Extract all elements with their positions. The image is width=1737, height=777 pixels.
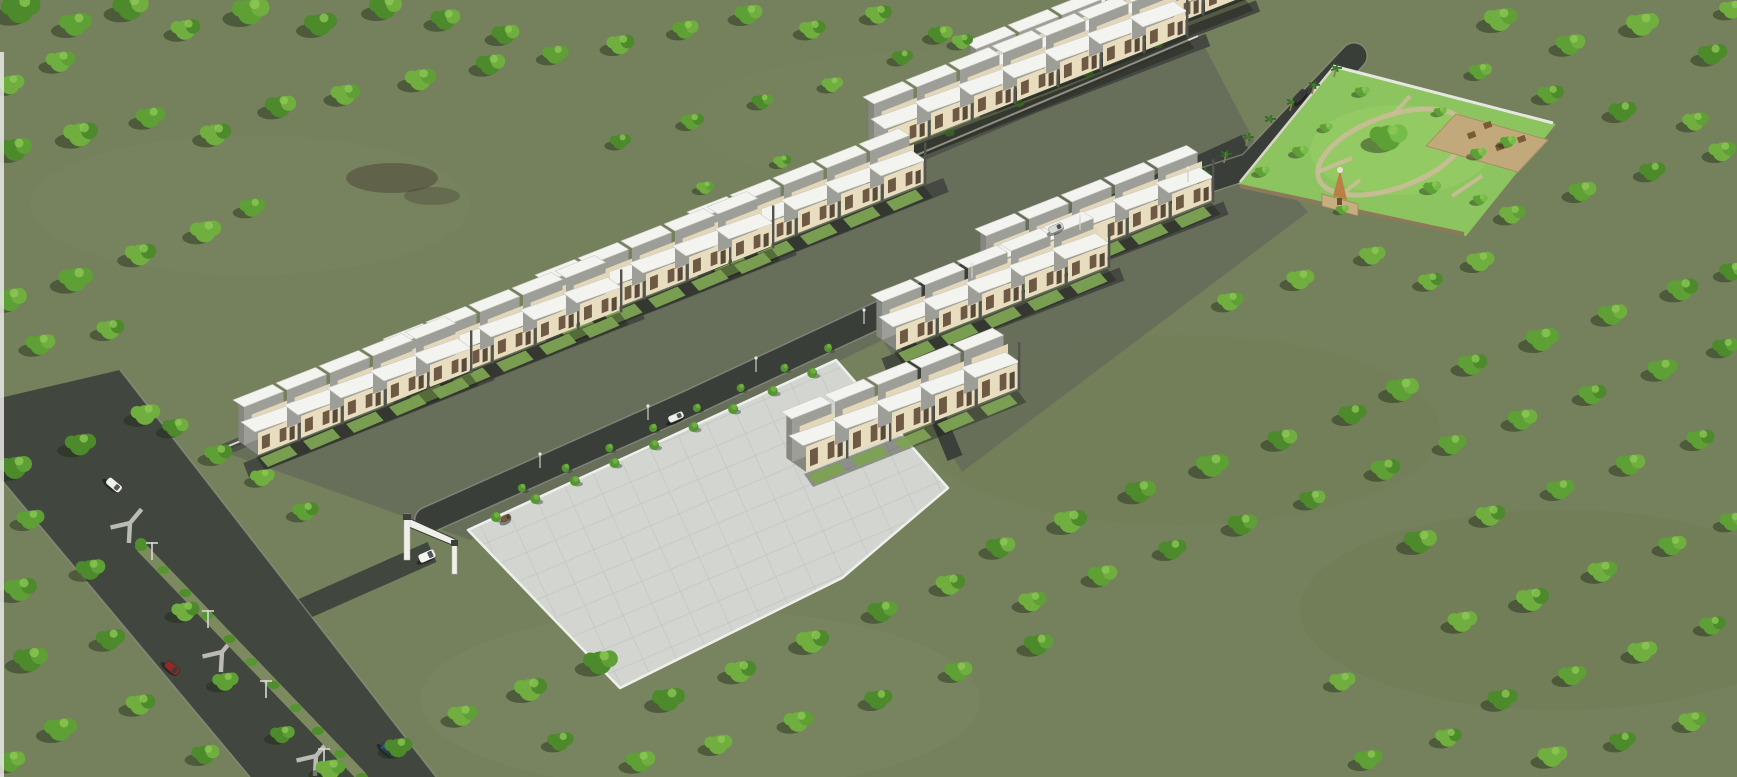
villa-door <box>916 170 921 185</box>
tree-canopy <box>1616 456 1629 469</box>
tree-canopy <box>1088 567 1101 580</box>
palm-crown <box>1334 66 1338 70</box>
tree-canopy <box>16 512 28 524</box>
tree-canopy <box>1473 196 1479 202</box>
tree-canopy <box>1255 168 1261 174</box>
median-hedge <box>246 658 258 666</box>
tree-canopy <box>1500 137 1507 144</box>
tree-canopy <box>76 561 89 574</box>
tree-highlight <box>1462 612 1470 620</box>
tree-canopy <box>734 7 746 19</box>
tree-canopy <box>944 664 956 676</box>
tree-highlight <box>1700 430 1708 438</box>
tree-canopy <box>1217 294 1228 305</box>
villa-window <box>280 427 287 443</box>
tree-highlight <box>1342 205 1346 209</box>
villa-window <box>1168 22 1175 38</box>
tree-canopy <box>292 504 303 515</box>
shrub-highlight <box>521 484 525 488</box>
tree-highlight <box>75 14 84 23</box>
tree-highlight <box>878 690 886 698</box>
tree-canopy <box>476 56 489 69</box>
villa-door <box>971 304 976 319</box>
tree-canopy <box>1018 594 1030 606</box>
gate-pylon-cap <box>451 540 458 546</box>
tree-canopy <box>1386 380 1400 394</box>
tree-canopy <box>1354 752 1366 764</box>
villa-door <box>873 187 878 202</box>
tree-canopy <box>936 576 949 589</box>
tree-canopy <box>191 747 203 759</box>
temple-dome <box>1337 167 1343 173</box>
tree-canopy <box>626 753 639 766</box>
villa-door <box>462 358 467 373</box>
shrub-highlight <box>608 444 612 448</box>
tree-highlight <box>305 503 312 510</box>
tree-highlight <box>80 434 89 443</box>
tree-highlight <box>30 510 38 518</box>
median-hedge <box>290 704 302 712</box>
villa-door <box>678 267 683 282</box>
tree-canopy <box>652 690 666 704</box>
tree-canopy <box>986 539 999 552</box>
tree-canopy <box>1228 516 1241 529</box>
villa-window <box>559 315 566 331</box>
villa-door <box>1049 72 1054 87</box>
tree-canopy <box>190 223 203 236</box>
tree-highlight <box>1502 690 1510 698</box>
shrub-highlight <box>696 404 700 408</box>
tree-highlight <box>175 419 182 426</box>
tree-highlight <box>1712 45 1720 53</box>
tree-canopy <box>171 604 183 616</box>
tree-highlight <box>60 52 68 60</box>
tree-highlight <box>1552 747 1560 755</box>
tree-highlight <box>205 745 213 753</box>
tree-highlight <box>1342 673 1349 680</box>
tree-canopy <box>1719 2 1730 13</box>
tree-canopy <box>1698 46 1711 59</box>
tree-highlight <box>1262 167 1266 171</box>
tree-canopy <box>1434 108 1440 114</box>
tree-canopy <box>725 663 738 676</box>
villa-door <box>1204 187 1209 202</box>
villa-door <box>1178 21 1183 36</box>
tree-canopy <box>1719 514 1730 525</box>
tree-highlight <box>620 35 628 43</box>
tree-highlight <box>762 95 768 101</box>
tree-canopy <box>1371 461 1384 474</box>
tree-canopy <box>704 737 716 749</box>
shrub-highlight <box>652 440 658 446</box>
tree-highlight <box>185 602 193 610</box>
median-hedge <box>179 589 191 597</box>
tree-canopy <box>1484 10 1498 24</box>
shrub-highlight <box>494 512 500 518</box>
tree-canopy <box>773 157 781 165</box>
tree-highlight <box>718 735 726 743</box>
tree-canopy <box>1286 272 1298 284</box>
villa-door <box>830 204 835 219</box>
villa-door <box>1014 287 1019 302</box>
tree-highlight <box>1432 182 1437 187</box>
tree-highlight <box>1362 87 1366 91</box>
villa-door <box>963 106 968 121</box>
tree-canopy <box>1648 361 1661 374</box>
tree-highlight <box>1032 592 1040 600</box>
tree-highlight <box>1695 113 1702 120</box>
tree-canopy <box>384 740 396 752</box>
shrub-highlight <box>652 424 656 428</box>
tree-highlight <box>640 752 648 760</box>
villa-door <box>1194 0 1199 15</box>
shrub-highlight <box>810 368 816 374</box>
tree-highlight <box>1560 480 1568 488</box>
tree-canopy <box>1435 730 1446 741</box>
lamp-head <box>754 356 757 359</box>
tree-canopy <box>952 36 961 45</box>
tree-highlight <box>1372 247 1379 254</box>
tree-canopy <box>1024 636 1037 649</box>
tree-canopy <box>865 7 876 18</box>
villa-window <box>982 379 990 398</box>
lamp-head <box>1186 166 1189 169</box>
tree-canopy <box>1418 275 1429 286</box>
tree-canopy <box>1626 15 1640 29</box>
villa-window <box>1004 288 1011 304</box>
tree-highlight <box>262 469 269 476</box>
tree-canopy <box>547 734 558 745</box>
tree-canopy <box>1423 183 1431 191</box>
shrub-highlight <box>771 386 777 392</box>
tree-canopy <box>405 71 418 84</box>
tree-canopy <box>1558 668 1570 680</box>
tree-canopy <box>1458 356 1471 369</box>
tree-highlight <box>90 560 98 568</box>
tree-highlight <box>1230 293 1237 300</box>
tree-highlight <box>1662 360 1670 368</box>
villa-door <box>1161 204 1166 219</box>
tree-highlight <box>832 78 838 84</box>
tree-highlight <box>140 695 148 703</box>
tree-highlight <box>692 114 698 120</box>
tree-highlight <box>1602 562 1610 570</box>
tree-canopy <box>1470 149 1477 156</box>
villa-window <box>625 285 632 301</box>
tree-highlight <box>555 46 562 53</box>
tree-canopy <box>26 336 39 349</box>
tree-canopy <box>13 650 28 665</box>
tree-highlight <box>1712 617 1719 624</box>
tree-highlight <box>40 335 48 343</box>
tree-highlight <box>1172 540 1180 548</box>
villa-door <box>483 348 488 363</box>
tree-highlight <box>620 135 626 141</box>
tree-highlight <box>505 25 513 33</box>
shrub-highlight <box>731 404 737 410</box>
shrub-highlight <box>534 494 540 500</box>
villa-window <box>1000 373 1007 392</box>
tree-canopy <box>1538 748 1551 761</box>
lamp-head <box>538 452 541 455</box>
tree-highlight <box>798 712 806 720</box>
tree-canopy <box>1476 507 1489 520</box>
villa-door <box>787 221 792 236</box>
palm-crown <box>1224 152 1228 156</box>
villa-door <box>1057 270 1062 285</box>
tree-canopy <box>270 728 281 739</box>
palm-crown <box>1246 135 1250 139</box>
tree-highlight <box>225 673 232 680</box>
tree-highlight <box>748 5 756 13</box>
villa-door <box>569 314 574 329</box>
tree-canopy <box>239 200 250 211</box>
villa-window <box>602 298 609 314</box>
tree-canopy <box>1628 643 1641 656</box>
tree-highlight <box>1570 35 1578 43</box>
tree-canopy <box>1678 714 1690 726</box>
villa-window <box>754 234 761 250</box>
tree-canopy <box>752 96 761 105</box>
tree-highlight <box>1448 729 1455 736</box>
tree-canopy <box>200 125 213 138</box>
tree-highlight <box>782 156 787 161</box>
tree-canopy <box>1336 206 1342 212</box>
tree-highlight <box>1642 14 1651 23</box>
villa-window <box>906 171 913 187</box>
tree-highlight <box>1550 86 1557 93</box>
tree-highlight <box>1725 339 1732 346</box>
tree-highlight <box>1368 750 1376 758</box>
tree-highlight <box>1300 270 1308 278</box>
tree-canopy <box>1708 144 1720 156</box>
villa-window <box>810 447 818 466</box>
tree-canopy <box>265 98 278 111</box>
tree-canopy <box>212 674 223 685</box>
tree-highlight <box>958 662 966 670</box>
tree-canopy <box>250 471 261 482</box>
tree-canopy <box>1370 127 1386 143</box>
tree-canopy <box>1448 613 1461 626</box>
tree-highlight <box>1312 491 1319 498</box>
tree-canopy <box>1719 264 1730 275</box>
tree-canopy <box>928 28 939 39</box>
villa-window <box>953 107 960 123</box>
tree-canopy <box>125 246 138 259</box>
tree-canopy <box>4 580 18 594</box>
villa-window <box>777 222 784 238</box>
villa-window <box>871 424 878 443</box>
tree-canopy <box>868 603 881 616</box>
tree-canopy <box>1268 431 1281 444</box>
tree-highlight <box>1000 538 1008 546</box>
tree-highlight <box>10 75 18 83</box>
tree-highlight <box>1242 515 1250 523</box>
tree-canopy <box>542 47 553 58</box>
villa-door <box>635 284 640 299</box>
tree-highlight <box>560 733 567 740</box>
tree-highlight <box>1212 455 1221 464</box>
villa-window <box>820 205 827 221</box>
tree-highlight <box>79 123 88 132</box>
gate-pylon <box>404 514 410 560</box>
tree-canopy <box>1598 306 1611 319</box>
tree-canopy <box>1568 184 1580 196</box>
tree-canopy <box>864 692 876 704</box>
tree-highlight <box>60 719 69 728</box>
villa-door <box>920 123 925 138</box>
villa-window <box>1039 73 1046 89</box>
tree-highlight <box>462 706 470 714</box>
tree-canopy <box>1556 36 1569 49</box>
tree-highlight <box>878 6 885 13</box>
tree-highlight <box>1385 460 1393 468</box>
villa-window <box>910 124 917 140</box>
villa-door <box>376 392 381 407</box>
tree-canopy <box>784 713 797 726</box>
villa-door <box>1006 89 1011 104</box>
tree-canopy <box>1355 88 1361 94</box>
tree-canopy <box>514 680 528 694</box>
tree-highlight <box>668 689 677 698</box>
tree-highlight <box>1480 252 1488 260</box>
tree-highlight <box>252 199 259 206</box>
tree-highlight <box>1532 589 1541 598</box>
tree-highlight <box>1352 405 1360 413</box>
tree-canopy <box>1712 340 1723 351</box>
tree-canopy <box>65 436 78 449</box>
tree-highlight <box>445 10 453 18</box>
palm-crown <box>1312 83 1316 87</box>
median-conifer <box>135 538 147 550</box>
tree-highlight <box>320 14 329 23</box>
tree-highlight <box>882 602 890 610</box>
tree-highlight <box>1490 506 1498 514</box>
tree-canopy <box>1196 456 1210 470</box>
villa-door <box>612 297 617 312</box>
tree-canopy <box>1508 411 1521 424</box>
tree-canopy <box>171 21 184 34</box>
villa-door <box>928 321 933 336</box>
tree-canopy <box>126 696 139 709</box>
tree-canopy <box>1699 618 1710 629</box>
shrub-highlight <box>613 458 619 464</box>
villa-door <box>1092 55 1097 70</box>
tree-canopy <box>1466 254 1478 266</box>
tree-canopy <box>822 79 831 88</box>
villa-window <box>711 251 718 267</box>
tree-canopy <box>316 761 329 774</box>
tree-highlight <box>1038 635 1046 643</box>
tree-highlight <box>962 35 968 41</box>
tree-highlight <box>1692 712 1700 720</box>
tree-canopy <box>1526 330 1540 344</box>
tree-canopy <box>606 37 618 49</box>
median-hedge <box>334 750 346 758</box>
tree-highlight <box>398 738 406 746</box>
tree-highlight <box>140 244 149 253</box>
tree-canopy <box>1404 532 1418 546</box>
tree-canopy <box>1299 492 1310 503</box>
tree-canopy <box>58 270 73 285</box>
tree-highlight <box>950 575 958 583</box>
tree-highlight <box>15 139 24 148</box>
tree-canopy <box>1499 207 1510 218</box>
villa-door <box>290 426 295 441</box>
tree-highlight <box>280 96 289 105</box>
tree-highlight <box>740 661 749 670</box>
tree-canopy <box>1578 387 1590 399</box>
scene-canvas <box>0 0 1737 777</box>
villa-window <box>918 322 925 338</box>
tree-canopy <box>1686 432 1698 444</box>
median-hedge <box>312 727 324 735</box>
tree-highlight <box>282 726 289 733</box>
villa-door <box>1135 38 1140 53</box>
villa-window <box>863 188 870 204</box>
tree-highlight <box>1326 123 1330 127</box>
tree-highlight <box>1472 355 1480 363</box>
tree-highlight <box>1572 666 1580 674</box>
tree-highlight <box>599 651 608 660</box>
tree-canopy <box>681 115 691 125</box>
tree-highlight <box>1522 410 1530 418</box>
villa-window <box>1090 254 1097 270</box>
villa-window <box>366 393 373 409</box>
tree-canopy <box>1537 87 1548 98</box>
tree-canopy <box>1667 281 1680 294</box>
tree-highlight <box>74 268 83 277</box>
tree-highlight <box>218 445 226 453</box>
tree-canopy <box>448 707 461 720</box>
tree-canopy <box>1658 538 1670 550</box>
tree-highlight <box>1480 64 1486 70</box>
villa-window <box>828 441 835 460</box>
tree-canopy <box>46 53 59 66</box>
tree-canopy <box>96 322 108 334</box>
tree-highlight <box>902 51 908 57</box>
villa-door <box>1118 221 1123 236</box>
villa-window <box>961 305 968 321</box>
tree-highlight <box>20 579 29 588</box>
villa-window <box>1194 188 1201 204</box>
tree-canopy <box>304 15 318 29</box>
villa-window <box>409 376 416 392</box>
tree-highlight <box>1420 531 1429 540</box>
tree-highlight <box>1592 385 1600 393</box>
villa-door <box>1100 253 1105 268</box>
tree-highlight <box>1070 511 1079 520</box>
tree-canopy <box>799 22 810 33</box>
tree-canopy <box>204 447 216 459</box>
tree-highlight <box>145 405 153 413</box>
villa-window <box>896 413 904 432</box>
lamp-head <box>970 262 973 265</box>
shrub-highlight <box>739 384 743 388</box>
tree-highlight <box>1622 102 1630 110</box>
villa-door <box>764 233 769 248</box>
tree-highlight <box>1102 566 1110 574</box>
median-hedge <box>268 681 280 689</box>
tree-canopy <box>1588 563 1601 576</box>
tree-canopy <box>63 125 78 140</box>
tree-highlight <box>685 21 692 28</box>
tree-highlight <box>1387 125 1397 135</box>
tree-highlight <box>1478 148 1483 153</box>
tree-highlight <box>1440 107 1444 111</box>
villa-window <box>1047 271 1054 287</box>
villa-door <box>1010 371 1015 389</box>
